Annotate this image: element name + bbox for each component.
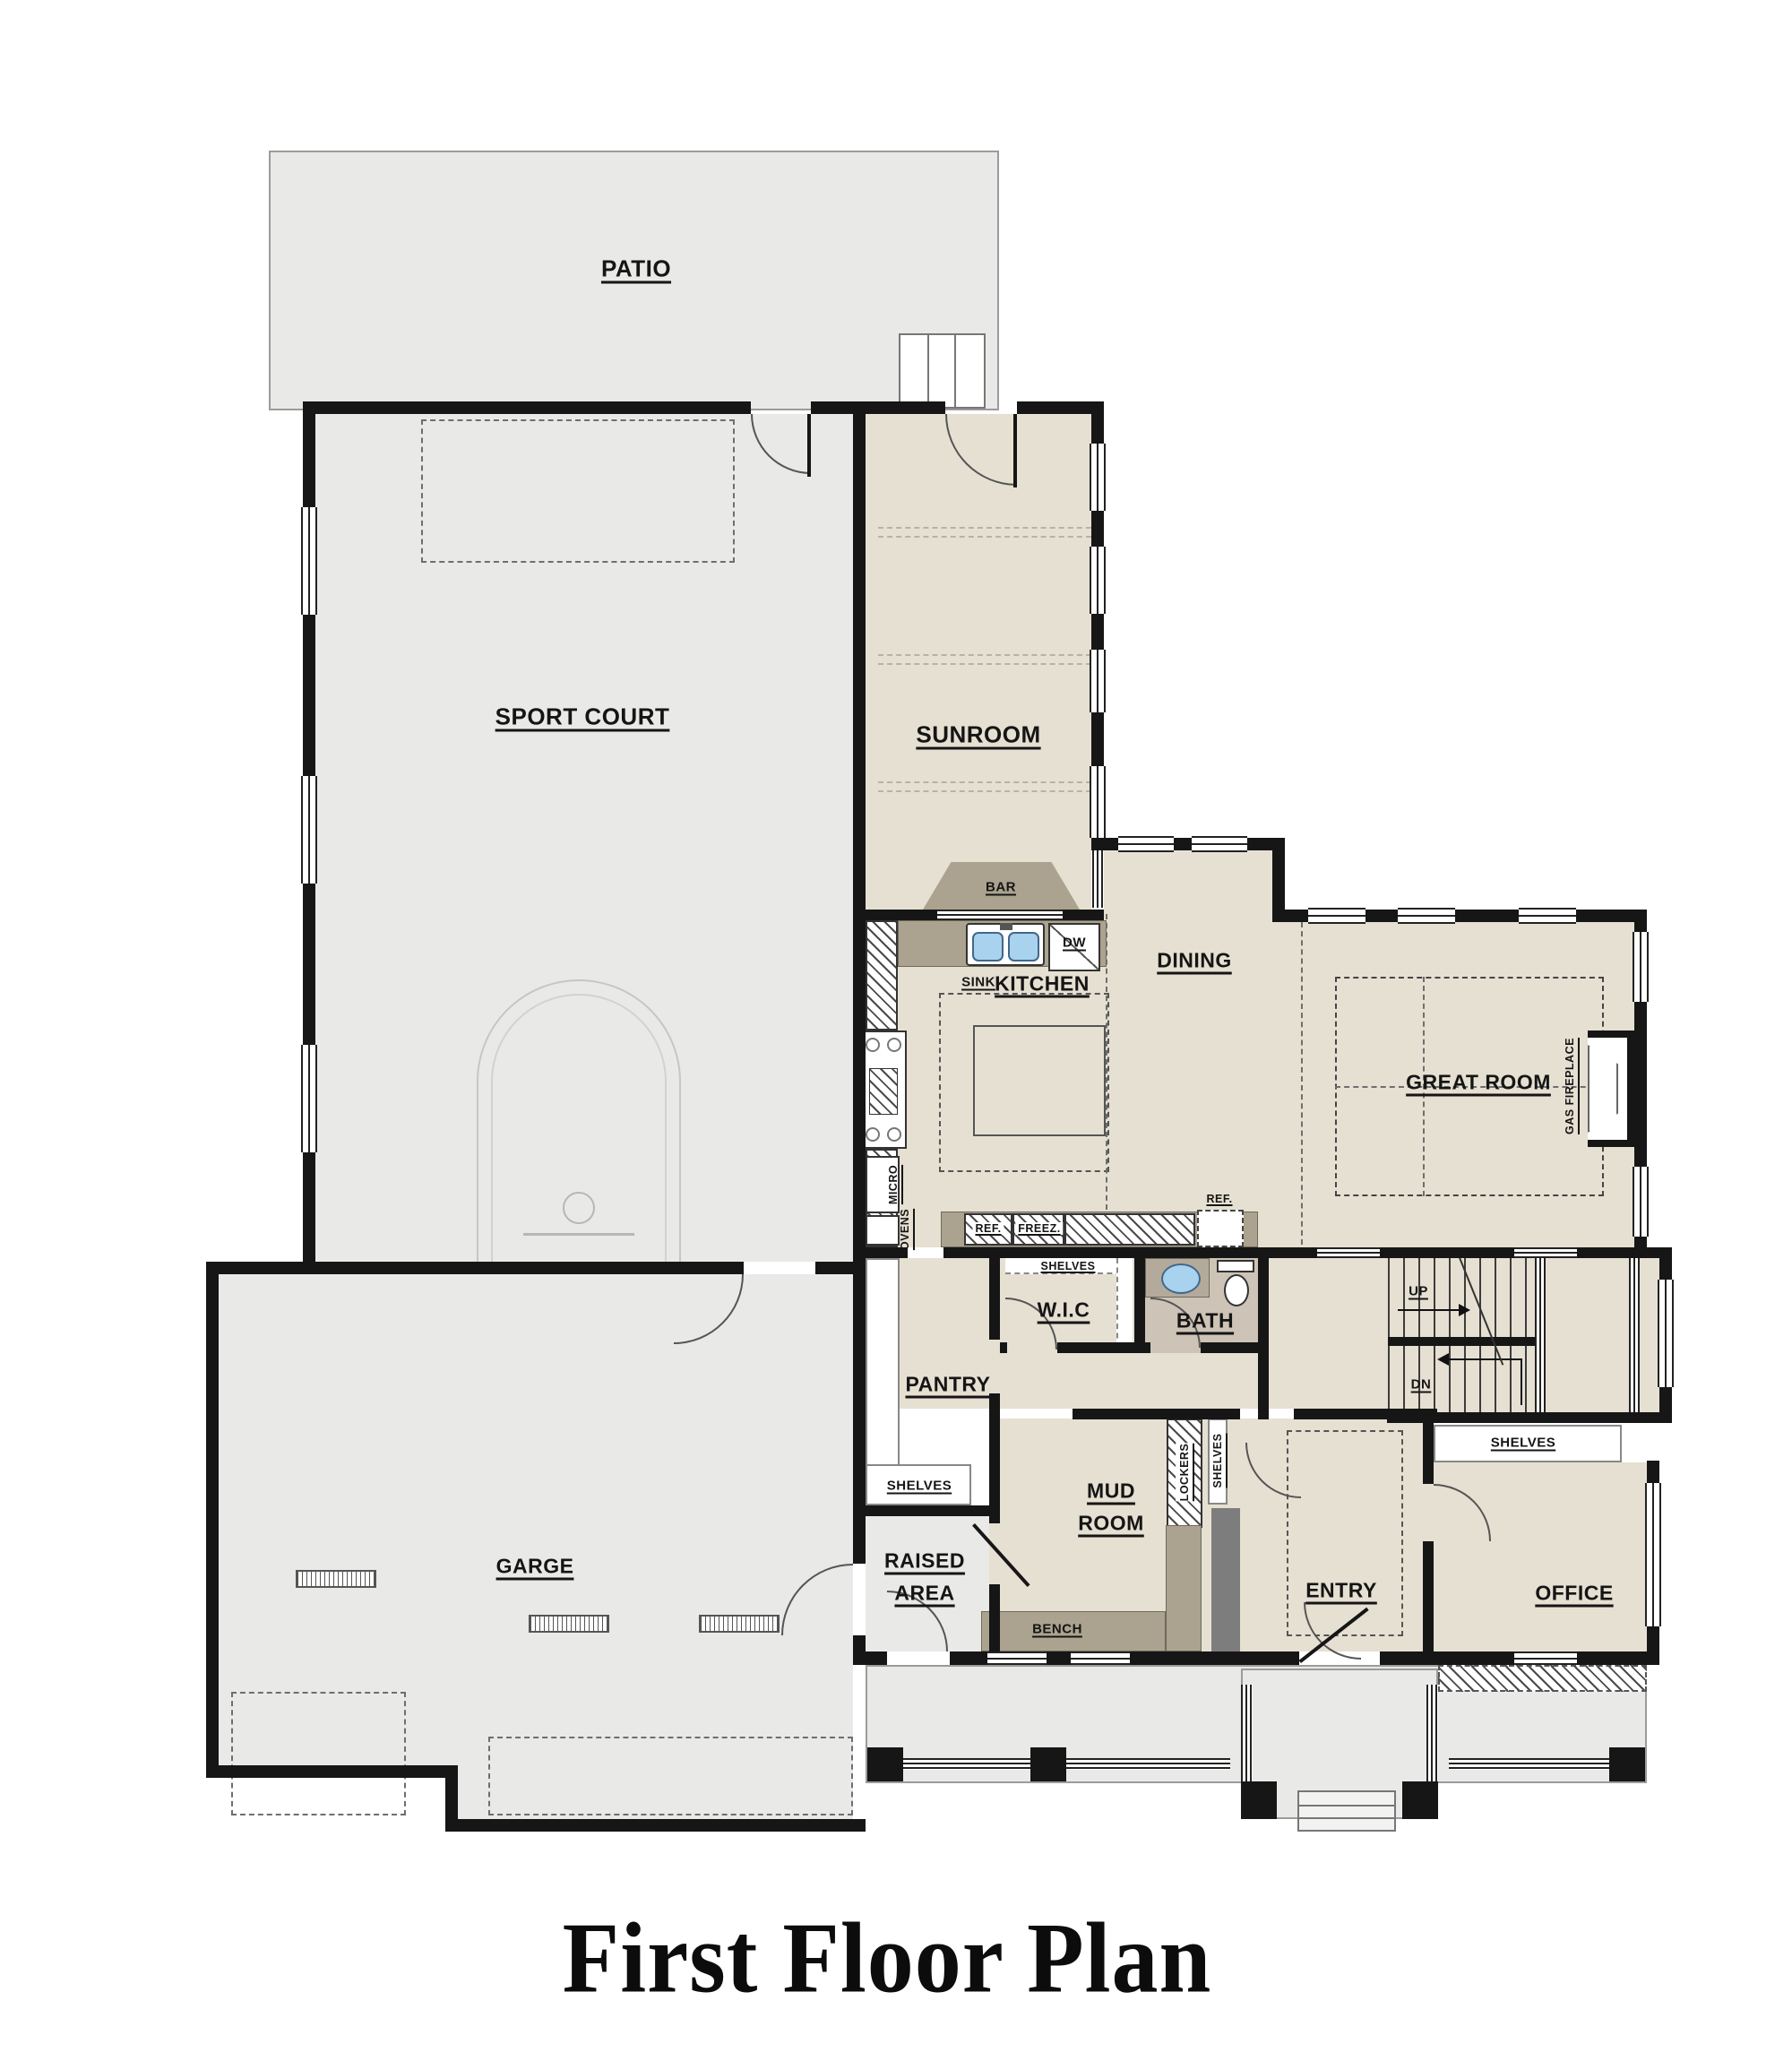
window (1071, 1651, 1130, 1665)
wall-segment (815, 1262, 866, 1274)
toilet-tank-icon (1217, 1260, 1254, 1272)
dn-arrow-path (1521, 1358, 1522, 1405)
gray-partition-wall (1211, 1508, 1240, 1651)
porch-railing (1426, 1685, 1438, 1781)
ovens-icon (866, 1215, 900, 1246)
counter-hatch (1064, 1213, 1195, 1246)
wall-segment (1380, 1247, 1514, 1258)
toilet-bowl-icon (1224, 1274, 1249, 1306)
wall-segment (1130, 1651, 1299, 1665)
door-leaf (1013, 414, 1017, 487)
porch-steps (1297, 1790, 1396, 1832)
porch-column (1030, 1747, 1066, 1781)
stair-rail (1629, 1258, 1640, 1412)
wic-shelf (1116, 1258, 1133, 1348)
window (1308, 908, 1366, 924)
dining-floor (1104, 850, 1285, 1247)
rail-opening (1317, 1247, 1380, 1258)
sunroom-beam (878, 527, 1091, 538)
window (1192, 836, 1247, 852)
wall-segment (866, 401, 945, 414)
label-raised-line1: RAISED (884, 1549, 965, 1574)
office-floor (1434, 1462, 1647, 1651)
wall-segment (1047, 1651, 1071, 1665)
up-arrowhead (1459, 1304, 1470, 1316)
label-gas-fireplace: GAS FIREPLACE (1564, 1038, 1576, 1134)
window (301, 1045, 317, 1152)
stair-rail (1535, 1258, 1546, 1412)
label-sunroom: SUNROOM (916, 721, 1040, 749)
label-bar: BAR (986, 880, 1016, 895)
bath-sink-icon (1161, 1263, 1201, 1294)
wall-segment (1423, 1541, 1434, 1651)
wall-segment (853, 1505, 1000, 1516)
door-leaf (807, 414, 811, 477)
patio-stoop (899, 333, 986, 409)
wall-segment (943, 1247, 1317, 1258)
wall-segment (206, 1262, 744, 1274)
wall-segment (303, 401, 751, 414)
floor-plan: PATIO SPORT COURT SUNROOM BAR SINK DW KI… (0, 0, 1792, 2061)
label-micro: MICRO (887, 1165, 900, 1204)
kitchen-dining-divider-dashed (1106, 914, 1107, 1210)
wall-segment (1073, 1409, 1240, 1419)
wall-segment (950, 1651, 987, 1665)
porch-railing (1241, 1685, 1253, 1781)
window (1398, 908, 1455, 924)
label-mud-line1: MUD (1087, 1479, 1135, 1504)
label-ref-hall: REF. (1206, 1193, 1232, 1205)
dn-arrowhead (1437, 1353, 1449, 1366)
wall-segment (1387, 1412, 1672, 1423)
rail-opening (1514, 1247, 1577, 1258)
label-ref-kitchen: REF. (972, 1222, 1004, 1235)
window (1090, 547, 1106, 614)
wall-segment (989, 1516, 1000, 1523)
label-great-room: GREAT ROOM (1406, 1071, 1551, 1095)
kitchen-wall-hatch (866, 920, 898, 1030)
wall-segment (445, 1819, 866, 1832)
range-icon (860, 1030, 907, 1149)
wall-segment (1423, 1423, 1434, 1484)
window (1514, 1651, 1577, 1665)
wall-segment (1258, 1258, 1269, 1348)
label-garage: GARGE (496, 1555, 574, 1579)
porch-column (867, 1747, 903, 1781)
wall-segment (206, 1765, 458, 1778)
label-pantry: PANTRY (906, 1373, 991, 1397)
porch-column (1609, 1747, 1645, 1781)
porch-column (1241, 1781, 1277, 1819)
sunroom-beam (878, 654, 1091, 665)
page-title: First Floor Plan (563, 1901, 1212, 2016)
label-dn: DN (1411, 1377, 1432, 1393)
window (1645, 1483, 1661, 1626)
garage-door-outline (231, 1692, 406, 1815)
bar-passthrough (937, 910, 1063, 920)
label-mud-line2: ROOM (1078, 1512, 1144, 1536)
window (1090, 444, 1106, 511)
label-shelves-hall: SHELVES (1491, 1436, 1555, 1451)
window (987, 1651, 1047, 1665)
window (1090, 766, 1106, 838)
gas-fireplace-icon (1588, 1030, 1634, 1147)
label-kitchen: KITCHEN (995, 972, 1090, 996)
bench-side (1166, 1525, 1202, 1651)
label-lockers: LOCKERS (1176, 1444, 1193, 1502)
window (301, 776, 317, 884)
kitchen-island (973, 1025, 1106, 1136)
wall-segment (1577, 1651, 1659, 1665)
label-office: OFFICE (1535, 1582, 1613, 1606)
sunroom-dining-opening (1092, 850, 1103, 908)
label-shelves-pantry: SHELVES (887, 1479, 952, 1494)
label-dining: DINING (1157, 949, 1232, 973)
label-shelves-wic: SHELVES (1041, 1260, 1096, 1272)
wall-segment (1380, 1651, 1514, 1665)
window (1633, 1167, 1649, 1237)
great-room-dashed-line (1301, 922, 1303, 1245)
wall-segment (989, 1584, 1000, 1651)
garage-vent (529, 1615, 609, 1633)
window (1519, 908, 1576, 924)
kitchen-sink-icon (966, 923, 1045, 966)
basketball-hoop-icon (563, 1192, 595, 1224)
stairs-down-flight (1388, 1346, 1535, 1412)
garage-vent (699, 1615, 780, 1633)
garage-vent (296, 1570, 376, 1588)
dn-arrow (1446, 1358, 1522, 1360)
window (1658, 1280, 1674, 1387)
label-wic: W.I.C (1038, 1298, 1090, 1323)
window (301, 507, 317, 615)
garage-door-outline (488, 1737, 853, 1815)
porch-hatch-strip (1438, 1665, 1647, 1692)
wall-segment (1258, 1348, 1269, 1419)
wall-segment (206, 1262, 219, 1778)
sunroom-beam (878, 781, 1091, 792)
sport-court-ceiling-dashed (421, 419, 735, 563)
wall-segment (1134, 1258, 1145, 1342)
up-arrow (1398, 1309, 1460, 1311)
label-bath: BATH (1176, 1309, 1234, 1333)
wall-segment (1577, 1247, 1672, 1258)
label-ovens: OVENS (899, 1209, 911, 1250)
label-bench: BENCH (1032, 1622, 1082, 1637)
window (1633, 932, 1649, 1002)
pantry-shelves (866, 1258, 900, 1466)
wall-segment (1057, 1342, 1150, 1353)
label-patio: PATIO (601, 255, 671, 283)
label-dw: DW (1063, 936, 1086, 951)
window (1118, 836, 1174, 852)
basketball-backboard (523, 1233, 634, 1236)
label-entry: ENTRY (1305, 1579, 1377, 1603)
label-freez: FREEZ. (1015, 1222, 1063, 1235)
wall-segment (989, 1258, 1000, 1340)
label-sink: SINK (961, 975, 995, 990)
label-shelves-mud: SHELVES (1211, 1434, 1224, 1488)
stair-landing-wall (1388, 1337, 1535, 1346)
wall-segment (853, 401, 866, 1564)
label-up: UP (1409, 1284, 1428, 1299)
label-raised-line2: AREA (894, 1582, 954, 1606)
wall-segment (853, 1651, 887, 1665)
wall-segment (989, 1393, 1000, 1516)
porch-railing (1449, 1758, 1613, 1770)
porch-column (1402, 1781, 1438, 1819)
refrigerator2-icon (1197, 1210, 1244, 1247)
label-sport-court: SPORT COURT (495, 703, 670, 731)
window (1090, 650, 1106, 712)
